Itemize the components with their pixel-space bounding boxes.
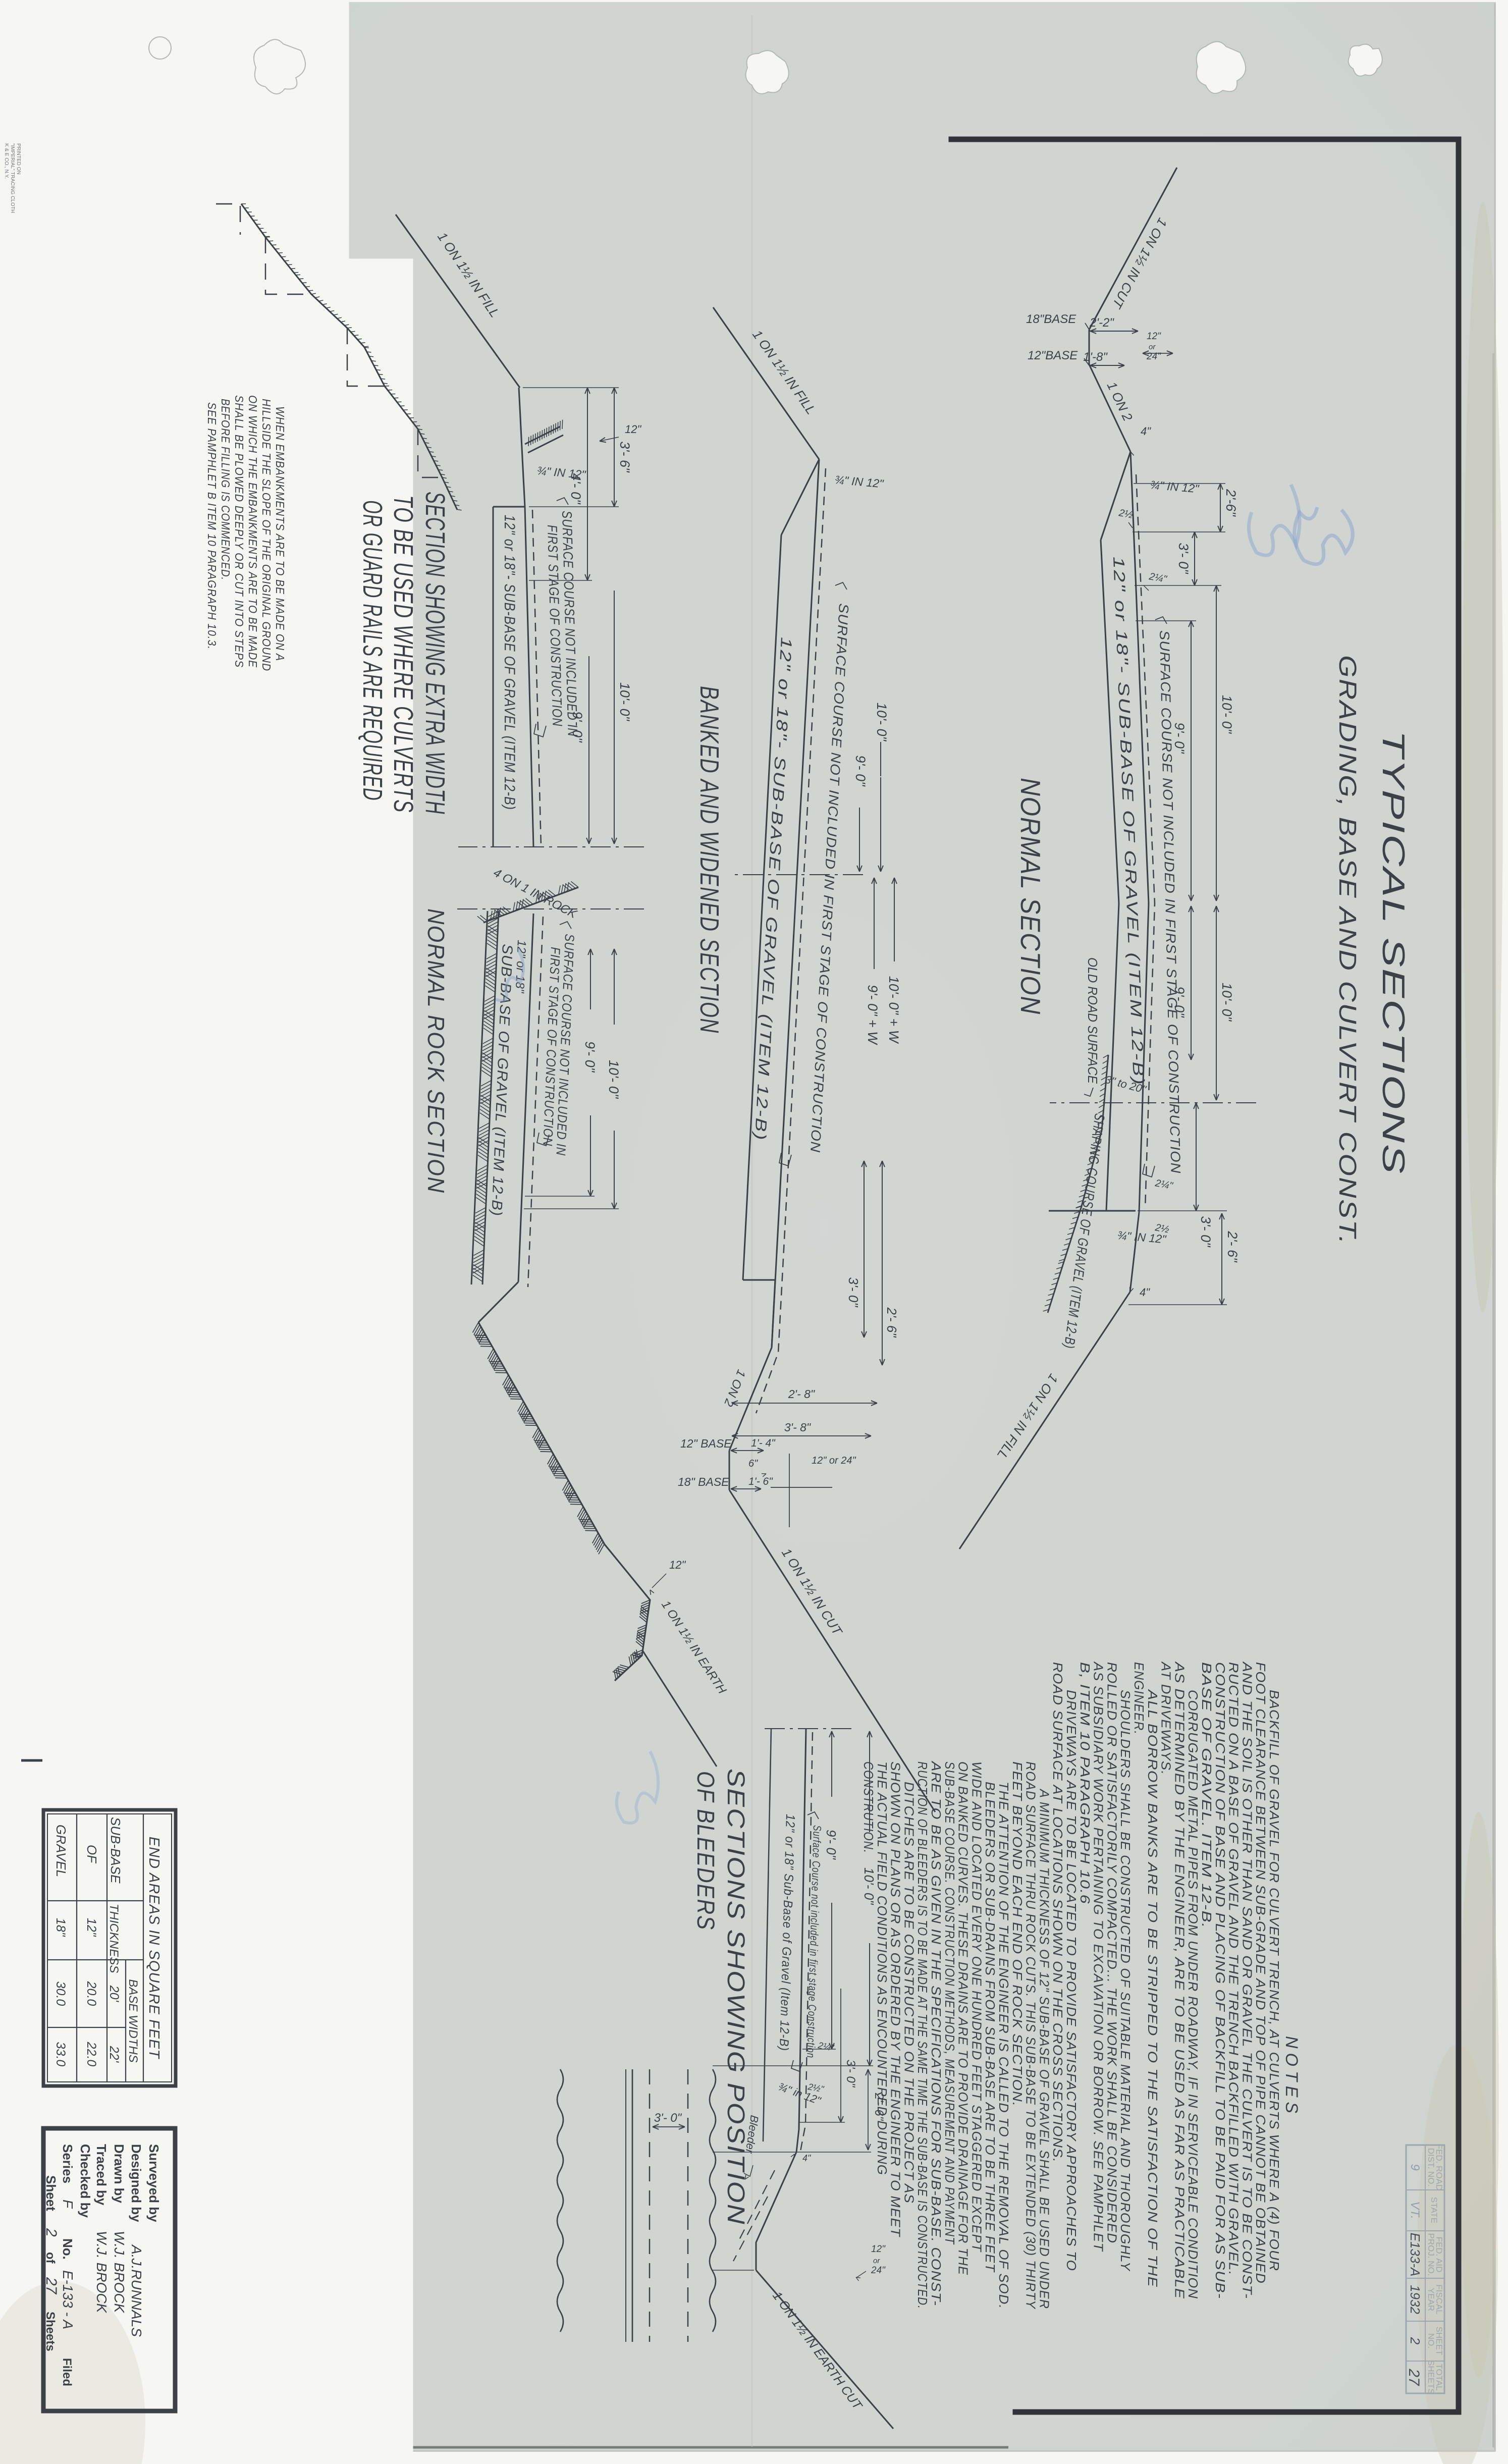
svg-text:3'- 0": 3'- 0": [846, 1277, 861, 1308]
svg-text:2: 2: [43, 2228, 60, 2237]
svg-text:W.J. BROCK: W.J. BROCK: [94, 2231, 110, 2314]
svg-text:WHEN EMBANKMENTS ARE TO BE: WHEN EMBANKMENTS ARE TO BE MADE ON A: [274, 406, 287, 661]
svg-text:SEE PAMPHLET B ITEM 10 PARAG: SEE PAMPHLET B ITEM 10 PARAGRAPH 10.3.: [205, 402, 219, 650]
svg-text:1932: 1932: [1408, 2285, 1423, 2314]
svg-text:ON BANKED CURVES. THESE DR: ON BANKED CURVES. THESE DRAINS ARE TO PR…: [956, 1761, 971, 2275]
svg-text:12": 12": [84, 1918, 98, 1937]
svg-text:SECTION SHOWING EXTRA WIDTH: SECTION SHOWING EXTRA WIDTH: [420, 492, 450, 815]
svg-text:9'- 0": 9'- 0": [853, 755, 868, 787]
svg-text:1'- 4": 1'- 4": [751, 1437, 776, 1449]
svg-text:1'- 6": 1'- 6": [748, 1476, 773, 1487]
svg-text:4": 4": [802, 2153, 812, 2163]
svg-text:STATE: STATE: [1429, 2197, 1439, 2223]
svg-text:BLEEDERS OR SUB-DRAINS FROM: BLEEDERS OR SUB-DRAINS FROM SUB-BASE ARE…: [983, 1782, 998, 2273]
svg-text:AS SUBSIDIARY WORK PERTAINI: AS SUBSIDIARY WORK PERTAINING TO EXCAVAT…: [1091, 1661, 1106, 2252]
svg-text:ROAD SURFACE THRU ROCK CUT: ROAD SURFACE THRU ROCK CUTS. THIS SUB-BA…: [1024, 1761, 1039, 2310]
svg-text:27: 27: [1406, 2368, 1422, 2386]
svg-text:12": 12": [1147, 331, 1161, 342]
svg-text:SHEETS: SHEETS: [1426, 2360, 1436, 2394]
svg-text:No.: No.: [60, 2238, 75, 2260]
svg-text:12": 12": [871, 2244, 886, 2255]
svg-text:10'- 0": 10'- 0": [874, 703, 889, 742]
svg-text:CONSTRUTION.: CONSTRUTION.: [861, 1761, 876, 1853]
svg-text:A.J.RUNNALS: A.J.RUNNALS: [129, 2244, 144, 2337]
svg-text:Sheet: Sheet: [43, 2175, 59, 2211]
svg-text:3'- 0": 3'- 0": [844, 2060, 857, 2088]
svg-text:THE ACTUAL FIELD CONDITIONS: THE ACTUAL FIELD CONDITIONS AS ENCOUNTER…: [875, 1761, 890, 2175]
svg-text:Designed by: Designed by: [129, 2144, 144, 2222]
svg-text:OF: OF: [84, 1845, 99, 1864]
svg-text:GRADING, BASE AND CULVERT CONS: GRADING, BASE AND CULVERT CONST.: [1334, 655, 1361, 1245]
svg-text:2: 2: [1408, 2337, 1423, 2345]
svg-text:PRINTED ON: PRINTED ON: [16, 143, 21, 175]
svg-text:3'- 0": 3'- 0": [654, 2111, 682, 2125]
svg-text:SECTIONS SHOWING POSITION: SECTIONS SHOWING POSITION: [722, 1769, 749, 2225]
svg-text:3'- 0": 3'- 0": [1198, 1216, 1213, 1248]
svg-text:12" or 18"- SUB-BASE OF GRAV: 12" or 18"- SUB-BASE OF GRAVEL (ITEM 12-…: [501, 515, 518, 810]
svg-text:3'- 0": 3'- 0": [1176, 543, 1191, 574]
svg-text:9'- 0": 9'- 0": [582, 1041, 598, 1073]
svg-text:ON WHICH THE EMBANKMENTS A: ON WHICH THE EMBANKMENTS ARE TO BE MADE: [246, 395, 259, 668]
svg-text:33.0: 33.0: [53, 2042, 68, 2067]
svg-text:10'- 0": 10'- 0": [861, 1867, 877, 1905]
svg-text:20': 20': [107, 1985, 121, 2003]
svg-text:10'- 0": 10'- 0": [606, 1060, 621, 1099]
svg-text:VT.: VT.: [1408, 2201, 1422, 2219]
svg-text:or: or: [873, 2257, 880, 2265]
svg-text:OF BLEEDERS: OF BLEEDERS: [692, 1771, 719, 1931]
svg-text:SHALL BE PLOWED DEEPLY OR: SHALL BE PLOWED DEEPLY OR CUT INTO STEPS: [233, 395, 246, 668]
svg-text:24": 24": [1146, 351, 1161, 362]
svg-text:WIDE AND LOCATED EVERY ONE: WIDE AND LOCATED EVERY ONE HUNDRED FEET …: [969, 1761, 984, 2253]
svg-text:10'- 0": 10'- 0": [1219, 695, 1234, 734]
svg-text:10'- 0": 10'- 0": [617, 682, 632, 722]
svg-text:Drawn by: Drawn by: [112, 2144, 127, 2204]
svg-text:Surveyed by: Surveyed by: [146, 2144, 161, 2222]
svg-text:18": 18": [53, 1918, 68, 1937]
svg-text:or: or: [1149, 343, 1156, 351]
svg-text:18" BASE: 18" BASE: [678, 1475, 729, 1488]
svg-text:AT DRIVEWAYS.: AT DRIVEWAYS.: [1159, 1661, 1174, 1775]
svg-text:Traced by: Traced by: [94, 2144, 109, 2206]
svg-text:10'- 0": 10'- 0": [1219, 983, 1234, 1022]
svg-text:9: 9: [1408, 2164, 1422, 2170]
svg-text:A MINIMUM THICKNESS OF 12": A MINIMUM THICKNESS OF 12" SUB-BASE OF G…: [1037, 1788, 1052, 2309]
svg-text:NORMAL ROCK SECTION: NORMAL ROCK SECTION: [423, 908, 449, 1194]
svg-text:9'- 0" + W: 9'- 0" + W: [865, 985, 880, 1045]
svg-text:E133-A: E133-A: [1408, 2233, 1423, 2277]
svg-text:9'- 0": 9'- 0": [824, 1830, 839, 1860]
svg-text:Sheets: Sheets: [43, 2312, 57, 2351]
svg-text:DRIVEWAYS ARE TO BE LOCATE: DRIVEWAYS ARE TO BE LOCATED TO PROVIDE S…: [1064, 1690, 1079, 2271]
svg-text:2'- 6": 2'- 6": [1225, 1230, 1240, 1263]
svg-text:2'-2": 2'-2": [1089, 316, 1114, 330]
svg-text:4'- 0": 4'- 0": [568, 473, 583, 505]
svg-text:BASE OF GRAVEL. ITEM 12: BASE OF GRAVEL. ITEM 12-B.: [1199, 1662, 1214, 1929]
svg-text:RUCTED ON A BASE OF GRAVE: RUCTED ON A BASE OF GRAVEL AND THE TRENC…: [1226, 1662, 1242, 2276]
svg-text:K & E CO., N.Y.: K & E CO., N.Y.: [4, 143, 9, 179]
svg-text:Filed: Filed: [60, 2358, 74, 2386]
svg-text:ROAD SURFACE AT LOCATIONS: ROAD SURFACE AT LOCATIONS SHOWN ON THE C…: [1050, 1662, 1065, 2163]
svg-text:10'- 0" + W: 10'- 0" + W: [886, 976, 901, 1044]
svg-text:W.J. BROCK: W.J. BROCK: [112, 2231, 127, 2314]
svg-text:FEET BEYOND EACH END OF: FEET BEYOND EACH END OF ROCK SECTION.: [1010, 1761, 1025, 2107]
svg-text:3'- 6": 3'- 6": [617, 441, 632, 473]
svg-text:4": 4": [1140, 1286, 1150, 1299]
svg-text:CONSTRUCTION OF BASE AND P: CONSTRUCTION OF BASE AND PLACING OF BACK…: [1213, 1662, 1228, 2299]
svg-text:FOOT CLEARANCE BETWEEN SUB-: FOOT CLEARANCE BETWEEN SUB-GRADE AND TOP…: [1253, 1662, 1268, 2284]
svg-text:12"BASE: 12"BASE: [1028, 349, 1078, 362]
svg-text:"IMPERIAL" TRACING CLOTH: "IMPERIAL" TRACING CLOTH: [10, 143, 15, 213]
svg-text:E-133 - A: E-133 - A: [60, 2270, 76, 2329]
svg-text:ARE TO BE AS GIVEN IN TH: ARE TO BE AS GIVEN IN THE SPECIFICATIONS…: [929, 1760, 944, 2306]
svg-text:BASE WIDTHS: BASE WIDTHS: [126, 1979, 140, 2062]
svg-text:NORMAL SECTION: NORMAL SECTION: [1015, 778, 1046, 1015]
svg-text:4": 4": [1141, 425, 1151, 438]
svg-text:2'-6": 2'-6": [1223, 489, 1238, 517]
svg-text:THE ATTENTION OF THE ENGIN: THE ATTENTION OF THE ENGINEER IS CALLED …: [996, 1782, 1011, 2309]
svg-text:Series: Series: [60, 2144, 75, 2183]
svg-text:OR GUARD RAILS ARE REQUIRED: OR GUARD RAILS ARE REQUIRED: [357, 500, 388, 801]
svg-text:DITCHES ARE TO BE CONSTRUC: DITCHES ARE TO BE CONSTRUCTED ON THE PRO…: [901, 1782, 917, 2204]
svg-text:30.0: 30.0: [53, 1981, 68, 2006]
svg-text:SUB-BASE COURSE. CONSTRUCTION: SUB-BASE COURSE. CONSTRUCTION METHODS, M…: [942, 1761, 957, 2245]
svg-text:24": 24": [871, 2265, 886, 2276]
svg-text:20.0: 20.0: [84, 1981, 98, 2006]
svg-text:TO BE USED WHERE CULVERTS: TO BE USED WHERE CULVERTS: [388, 495, 418, 813]
svg-text:12": 12": [625, 423, 641, 436]
svg-text:NOTES: NOTES: [1282, 2036, 1301, 2118]
svg-text:2'- 8": 2'- 8": [788, 1387, 816, 1401]
svg-text:THICKNESS: THICKNESS: [107, 1904, 121, 1973]
svg-text:YEAR: YEAR: [1426, 2288, 1436, 2311]
svg-text:F: F: [60, 2200, 76, 2209]
svg-text:DIST. NO.: DIST. NO.: [1426, 2148, 1436, 2187]
svg-text:SUB-BASE: SUB-BASE: [108, 1817, 123, 1884]
svg-text:B, ITEM 10 PARAGRAPH 10.6: B, ITEM 10 PARAGRAPH 10.6: [1078, 1662, 1093, 1904]
svg-text:12" or 24": 12" or 24": [812, 1455, 856, 1466]
svg-text:ENGINEER.: ENGINEER.: [1132, 1662, 1147, 1735]
svg-text:BACKFILL OF GRAVEL FOR CULV: BACKFILL OF GRAVEL FOR CULVERT TRENCH, A…: [1267, 1690, 1282, 2271]
svg-text:BEFORE FILLING IS COMMENCED.: BEFORE FILLING IS COMMENCED.: [219, 399, 232, 580]
svg-text:2'- 6": 2'- 6": [884, 1307, 899, 1338]
svg-text:ALL BORROW BANKS ARE TO B: ALL BORROW BANKS ARE TO BE STRIPPED TO T…: [1145, 1689, 1160, 2287]
svg-text:GRAVEL: GRAVEL: [53, 1825, 69, 1877]
svg-text:PROJ. NO.: PROJ. NO.: [1426, 2233, 1436, 2276]
svg-text:ROLLED OR SATISFACTORILY CO: ROLLED OR SATISFACTORILY COMPACTED... TH…: [1104, 1662, 1119, 2243]
svg-text:BANKED AND WIDENED SECTION: BANKED AND WIDENED SECTION: [694, 686, 724, 1034]
svg-text:12": 12": [669, 1559, 686, 1571]
svg-text:SHOWN ON PLANS OR AS ORDE: SHOWN ON PLANS OR AS ORDERED BY THE ENGI…: [888, 1761, 903, 2237]
svg-text:CORRUGATED METAL PIPES FROM: CORRUGATED METAL PIPES FROM UNDER ROADWA…: [1186, 1690, 1201, 2299]
svg-text:NO.: NO.: [1426, 2333, 1436, 2348]
svg-text:12" BASE: 12" BASE: [680, 1437, 732, 1450]
svg-text:HILLSIDE THE SLOPE OF THE: HILLSIDE THE SLOPE OF THE ORIGINAL GROUN…: [260, 399, 273, 671]
svg-text:OLD ROAD SURFACE: OLD ROAD SURFACE: [1085, 957, 1100, 1084]
svg-text:3'- 8": 3'- 8": [784, 1421, 812, 1434]
svg-text:22': 22': [107, 2046, 121, 2063]
svg-text:6": 6": [748, 1458, 758, 1469]
svg-text:TYPICAL SECTIONS: TYPICAL SECTIONS: [1376, 730, 1411, 1175]
svg-text:27: 27: [43, 2277, 60, 2295]
svg-text:END AREAS IN SQUARE FEET: END AREAS IN SQUARE FEET: [146, 1837, 162, 2060]
svg-text:SHOULDERS SHALL BE CONSTRUC: SHOULDERS SHALL BE CONSTRUCTED OF SUITAB…: [1118, 1690, 1133, 2272]
svg-text:of: of: [43, 2252, 57, 2264]
svg-text:AND THE SOIL IS OTHER THA: AND THE SOIL IS OTHER THAN SAND OR GRAVE…: [1240, 1661, 1255, 2299]
svg-text:RUCTION OF BLEEDERS IS TO BE M: RUCTION OF BLEEDERS IS TO BE MADE AT THE…: [915, 1761, 930, 2309]
svg-text:22.0: 22.0: [84, 2042, 98, 2067]
svg-text:AS DETERMINED BY THE ENGIN: AS DETERMINED BY THE ENGINEER, ARE TO BE…: [1172, 1661, 1187, 2299]
svg-text:18"BASE: 18"BASE: [1026, 312, 1076, 326]
svg-text:Checked by: Checked by: [78, 2144, 93, 2218]
